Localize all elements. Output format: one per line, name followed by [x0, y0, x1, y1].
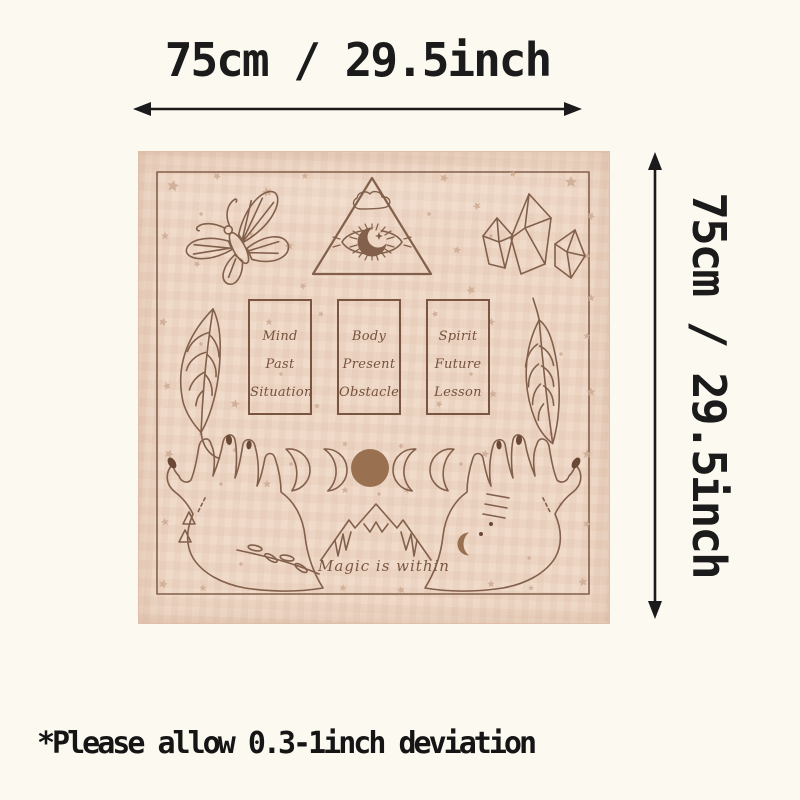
height-arrow	[643, 150, 667, 621]
moon-phases-icon	[286, 446, 454, 491]
product-dimension-diagram: 75cm / 29.5inch 75cm / 29.5inch	[0, 0, 800, 800]
eye-triangle-icon	[313, 178, 431, 274]
arrow-head-left	[133, 102, 151, 116]
deviation-footnote: *Please allow 0.3-1inch deviation	[37, 726, 534, 761]
width-dimension-label: 75cm / 29.5inch	[131, 33, 584, 87]
full-moon	[351, 449, 389, 487]
arrow-head-bottom	[648, 601, 662, 619]
cloth-caption: Magic is within	[299, 557, 469, 575]
butterfly-icon	[175, 181, 304, 296]
feather-right-icon	[522, 297, 562, 444]
arrow-head-top	[648, 152, 662, 170]
width-arrow	[131, 97, 584, 121]
arrow-head-right	[564, 102, 582, 116]
feather-left-icon	[173, 306, 235, 458]
tarot-altar-cloth: Mind Past Situation Body Present Obstacl…	[138, 151, 610, 624]
mountains-icon	[321, 504, 431, 560]
cloth-artwork	[139, 152, 609, 623]
height-dimension-label: 75cm / 29.5inch	[682, 192, 736, 577]
crystals-icon	[483, 194, 585, 278]
